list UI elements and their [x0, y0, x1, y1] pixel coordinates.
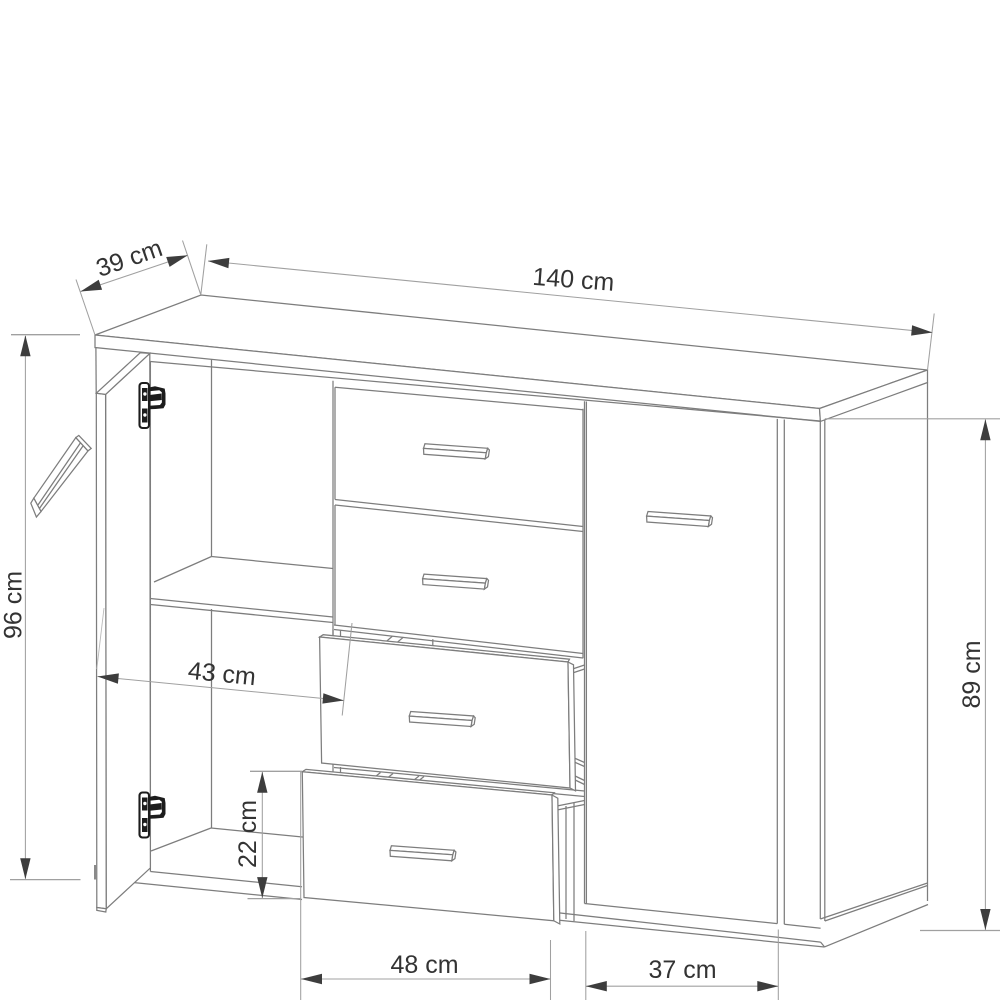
svg-text:89 cm: 89 cm [958, 640, 986, 708]
svg-text:48 cm: 48 cm [390, 951, 458, 979]
svg-text:96 cm: 96 cm [0, 571, 28, 639]
svg-text:22 cm: 22 cm [234, 800, 262, 868]
svg-text:37 cm: 37 cm [648, 956, 716, 984]
